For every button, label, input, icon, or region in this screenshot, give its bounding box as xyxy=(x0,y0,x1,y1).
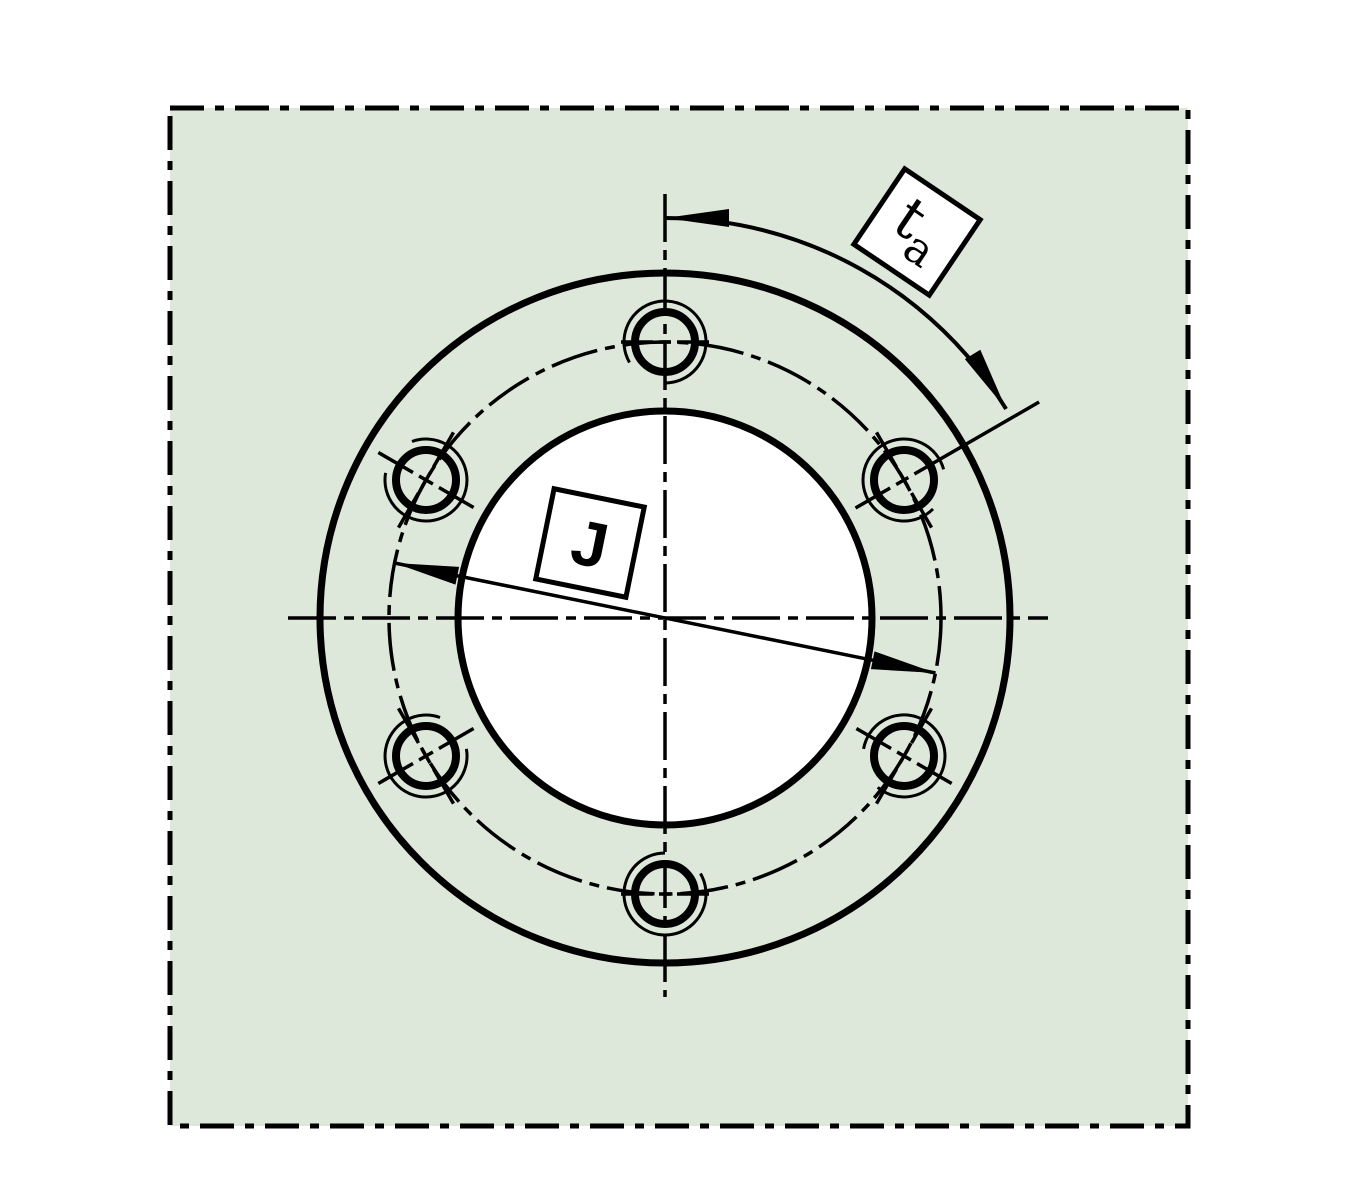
j-label-box: J xyxy=(536,489,644,597)
drawing-page: J ta xyxy=(0,0,1350,1200)
flange-technical-drawing: J ta xyxy=(0,0,1350,1200)
